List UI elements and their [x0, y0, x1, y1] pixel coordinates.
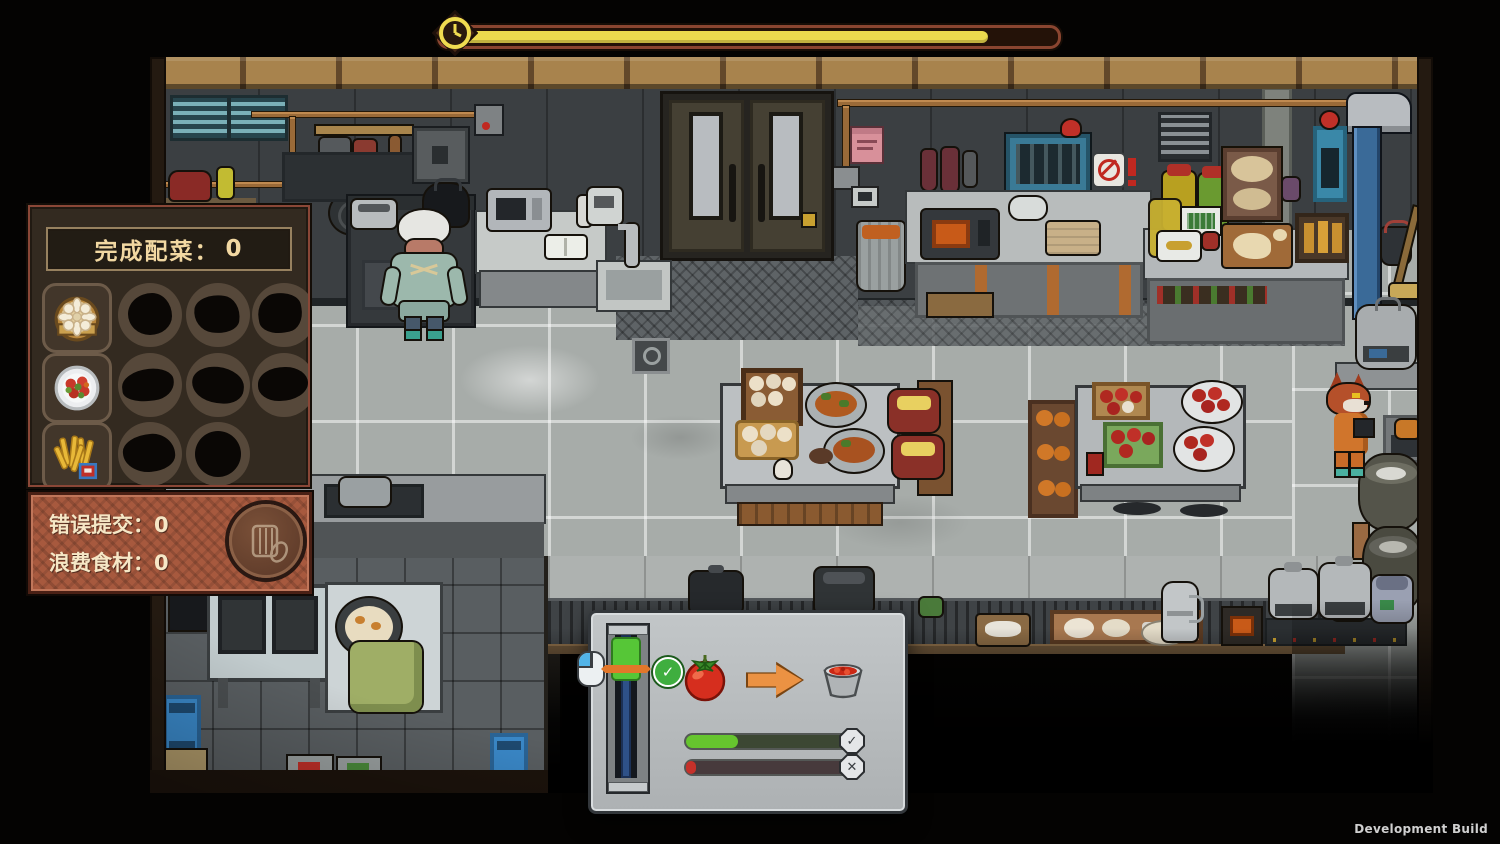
tomato-crate-green[interactable]: [1103, 422, 1163, 468]
door-handle[interactable]: [758, 164, 765, 222]
tomato-icon: [679, 649, 731, 705]
recipe-slot: [186, 353, 250, 417]
fries-icon: [42, 422, 112, 487]
completed-title: 完成配菜： 0: [46, 227, 292, 271]
fail-progress-fill: [686, 761, 696, 774]
wall-bottle: [922, 150, 936, 190]
bottle-crate[interactable]: [1295, 213, 1349, 263]
dough-rack[interactable]: [1223, 148, 1281, 220]
wall-bottle: [964, 152, 976, 186]
tomato-crate-wood[interactable]: [1092, 382, 1150, 420]
recipe-slot: [186, 422, 250, 486]
recipe-slot: [118, 353, 182, 417]
press-machine[interactable]: [1313, 126, 1347, 202]
wasted-food-label: 浪费食材：: [49, 551, 154, 575]
wall-vent: [1158, 112, 1212, 162]
wasted-food-value: 0: [154, 551, 169, 575]
microwave[interactable]: [488, 190, 550, 230]
sink-basin[interactable]: [598, 262, 670, 310]
wall-meter: [853, 188, 877, 206]
pot-rack: [316, 126, 412, 134]
serving-table-tomatoes[interactable]: [1028, 380, 1243, 532]
tomato-plate[interactable]: [1183, 382, 1241, 422]
trash-bin[interactable]: [858, 222, 904, 290]
round-timer-bar: [437, 25, 1061, 49]
red-box: [1088, 454, 1102, 474]
recipe-row: [30, 353, 308, 419]
fox-character: [1327, 372, 1375, 478]
fox-head: [1328, 384, 1369, 414]
milk-jug[interactable]: [1163, 583, 1197, 641]
copper-pipe: [252, 112, 482, 117]
under-shelf-box: [928, 294, 992, 316]
door-window: [769, 112, 803, 220]
waste-bin-icon: [229, 504, 303, 578]
copper-pipe: [838, 100, 1354, 106]
completed-title-label: 完成配菜：: [94, 232, 219, 266]
burner: [1113, 502, 1161, 515]
chef-torso: [392, 254, 456, 306]
chef-character: [386, 210, 462, 340]
chef-hat: [399, 210, 449, 244]
food-scrap: [809, 448, 833, 464]
steel-pot[interactable]: [1270, 570, 1317, 618]
metal-tray: [1010, 197, 1046, 219]
floor-drain: [632, 338, 670, 374]
recipe-slot: [252, 353, 310, 417]
cooking-minigame-popup: ✓: [588, 610, 908, 814]
mouse-left-click-icon: [577, 651, 605, 687]
tomato-plate[interactable]: [1175, 428, 1233, 470]
success-progress-fill: [686, 735, 738, 748]
rice-cooker[interactable]: [1372, 576, 1412, 622]
baking-tray: [272, 596, 318, 654]
red-pot[interactable]: [889, 390, 939, 432]
door-keypad[interactable]: [803, 214, 815, 226]
prohibition-sign: [1094, 154, 1124, 186]
wall-cabinet: [414, 128, 468, 182]
wall-vent: [170, 95, 230, 141]
pink-wall-sign: [852, 128, 882, 162]
baking-tray: [218, 596, 266, 654]
counter-oven[interactable]: [922, 210, 998, 258]
trash-contents: [862, 225, 900, 239]
tomato-sauce-bowl-icon: [817, 653, 869, 705]
serving-table-buns[interactable]: [723, 368, 955, 526]
success-check-icon: ✓: [839, 728, 865, 754]
steamer-dumplings-icon: [42, 283, 112, 353]
copper-pipe: [843, 106, 849, 174]
gauge-target-zone: [611, 637, 641, 681]
herb-bundle: [920, 598, 942, 616]
bun-basket[interactable]: [735, 420, 799, 460]
wasted-food-row: 浪费食材：0: [49, 547, 169, 577]
timer-fill: [444, 31, 988, 43]
cabinet-top-valve: [1062, 120, 1080, 136]
door-handle[interactable]: [729, 164, 736, 222]
sink-faucet[interactable]: [626, 224, 638, 266]
right-wall-wood: [1417, 57, 1433, 793]
success-progress-bar: ✓: [686, 735, 853, 748]
clock-icon: [432, 10, 478, 56]
counter-pot[interactable]: [340, 478, 390, 506]
completed-title-value: 0: [225, 236, 243, 262]
water-urn[interactable]: [1357, 306, 1415, 368]
timing-gauge[interactable]: [606, 623, 650, 794]
small-red-jar: [1203, 233, 1218, 249]
blue-pipe: [1354, 128, 1380, 318]
recipe-slot: [252, 283, 310, 347]
stats-panel: 错误提交：0 浪费食材：0: [28, 492, 312, 594]
dish-plate[interactable]: [825, 430, 883, 472]
burner: [1180, 504, 1228, 517]
game-screen: 完成配菜： 0: [0, 0, 1500, 844]
stove-base: [1265, 618, 1407, 646]
recipe-row: [30, 422, 308, 487]
prep-table-base: [481, 272, 601, 306]
pipe-junction-box: [834, 168, 858, 188]
gauge-needle: [601, 665, 651, 673]
wall-vent: [228, 95, 288, 141]
dark-pot[interactable]: [815, 568, 873, 614]
green-cloth-sack[interactable]: [350, 642, 422, 712]
recipe-slot: [118, 283, 182, 347]
dish-plate[interactable]: [807, 384, 865, 426]
mushroom: [775, 460, 791, 478]
tray-table[interactable]: [210, 588, 328, 710]
fail-progress-bar: ✕: [686, 761, 853, 774]
steel-pot[interactable]: [1320, 564, 1370, 618]
bun-crate[interactable]: [741, 368, 803, 426]
fail-cross-icon: ✕: [839, 754, 865, 780]
dark-pot[interactable]: [690, 572, 742, 614]
open-book: [546, 236, 586, 258]
recipe-row: [30, 283, 308, 349]
spice-jar: [1283, 178, 1299, 200]
shelf-bottle: [218, 168, 233, 198]
wall-bottle: [942, 148, 958, 192]
label-card: [1182, 208, 1220, 234]
coffee-machine[interactable]: [588, 188, 622, 224]
pumpkin-shelf[interactable]: [1028, 400, 1078, 518]
tray-with-food: [1158, 232, 1200, 260]
tool-cabinet[interactable]: [1006, 134, 1090, 194]
completed-dishes-panel: 完成配菜： 0: [28, 205, 310, 487]
cutting-board[interactable]: [1047, 222, 1099, 254]
duct-elbow: [1348, 94, 1410, 132]
board-with-cloth: [977, 615, 1029, 645]
wrong-submit-row: 错误提交：0: [49, 509, 169, 539]
board-with-dough[interactable]: [1223, 225, 1291, 267]
pantry-table-base: [1147, 278, 1345, 344]
breaker-box: [476, 106, 502, 134]
top-wall-wood: [150, 57, 1433, 89]
development-build-label: Development Build: [1354, 822, 1488, 836]
wrong-submit-value: 0: [154, 513, 169, 537]
shelf-red-pot: [170, 172, 210, 200]
double-doors[interactable]: [663, 94, 831, 258]
press-valve: [1321, 112, 1338, 128]
door-window: [689, 112, 723, 220]
exclamation-sign: [1128, 158, 1136, 176]
fox-held-item: [1355, 420, 1373, 436]
recipe-slot: [186, 283, 250, 347]
red-pot[interactable]: [893, 436, 943, 478]
tomato-salad-plate-icon: [42, 353, 112, 423]
exclamation-dot: [1128, 180, 1136, 186]
recipe-slot: [118, 422, 182, 486]
wrong-submit-label: 错误提交：: [49, 513, 154, 537]
bottom-wall-tiles: [548, 556, 1345, 598]
small-furnace[interactable]: [1223, 608, 1261, 644]
arrow-right-icon: [746, 661, 804, 699]
